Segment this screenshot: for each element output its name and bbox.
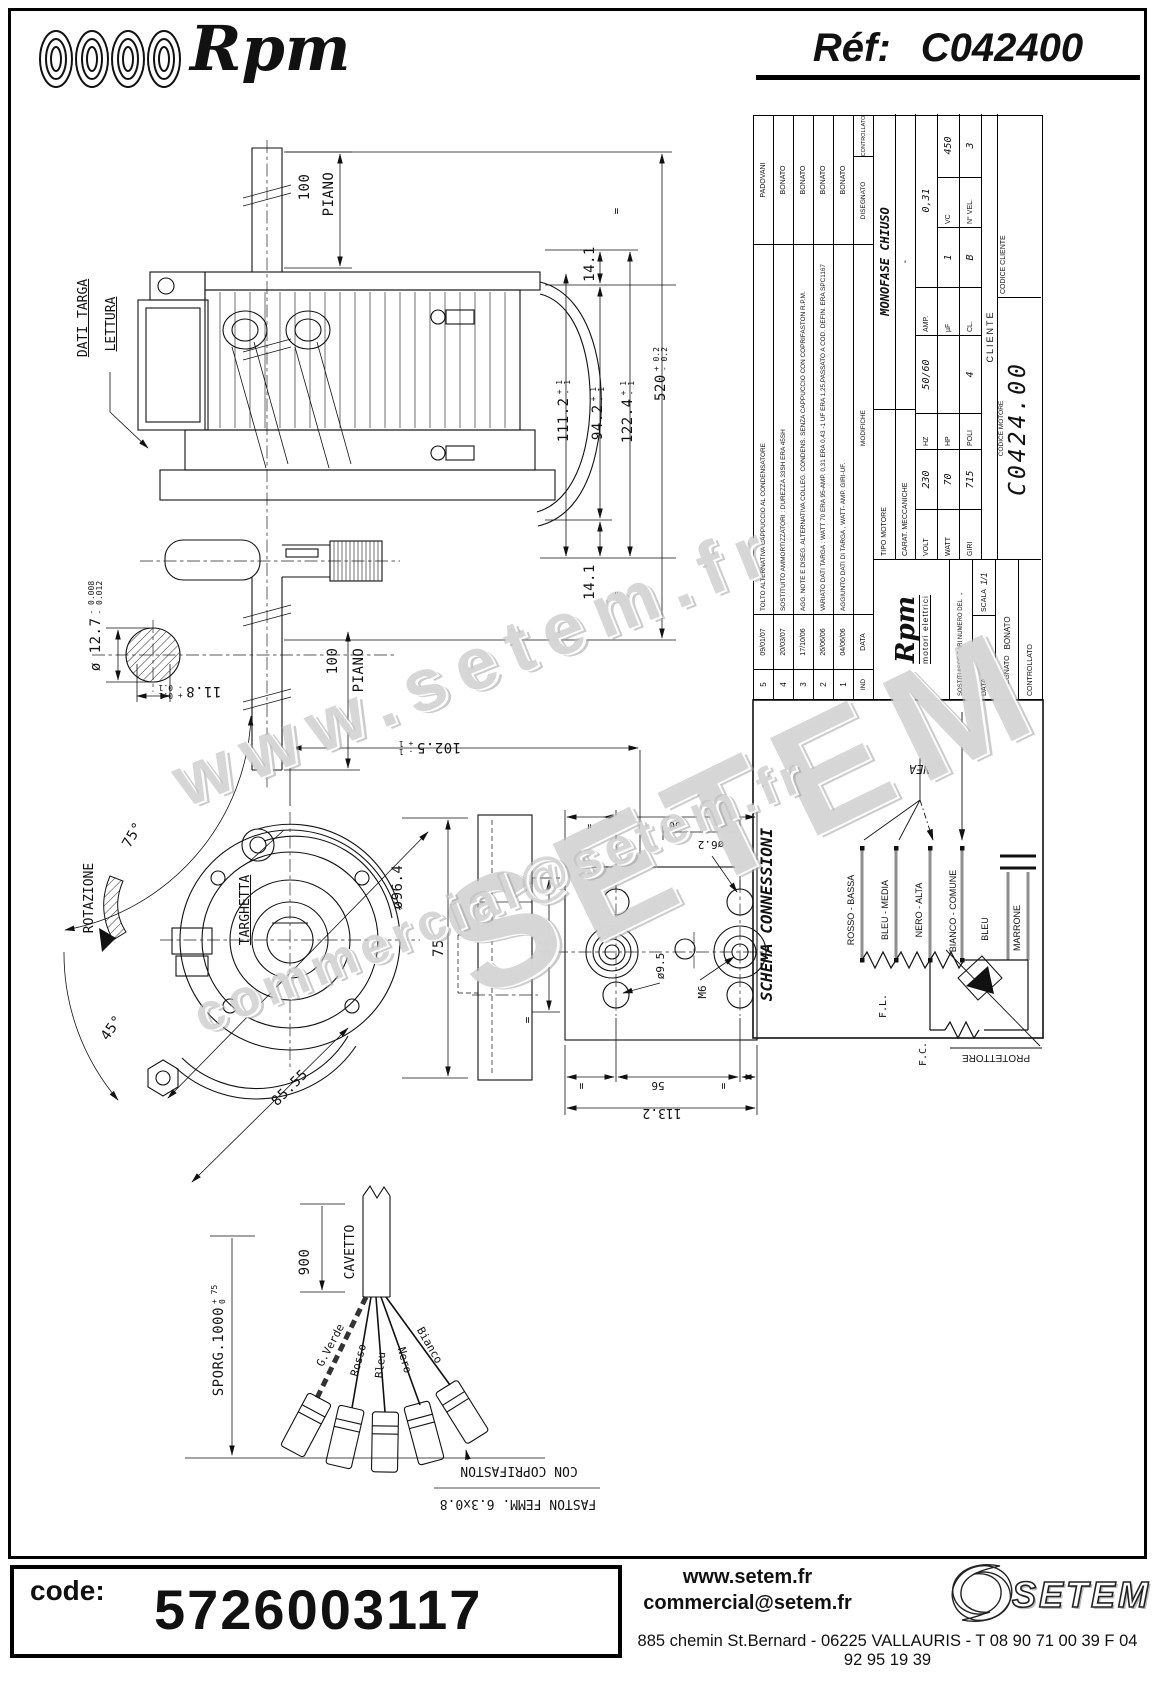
titleblock-rpm-sub: motori elettrici [919, 595, 931, 664]
dim-dia-9-5: ø9.5 [648, 936, 672, 996]
scala-row: SCALA 1/1 [973, 559, 996, 615]
titleblock-logo-cell: Rpm motori elettrici [874, 559, 950, 699]
uf-value: 1 [938, 227, 960, 287]
dim-113-2: 113.2 [634, 1102, 690, 1124]
data-row: DATA —23/05/06 [973, 615, 996, 699]
code-value: 5726003117 [154, 1577, 482, 1642]
schema-wire-marrone: MARRONE [1008, 892, 1026, 964]
label-dati-targa: DATI TARGA [72, 262, 94, 374]
giri-value: 715 [960, 449, 982, 509]
drawing-sheet: Rpm Réf: C042400 www.setem.fr SETEM comm… [0, 0, 1154, 1683]
uf-label: µF [938, 287, 960, 335]
hp-label: HP [938, 413, 960, 449]
dim-75: 75 [428, 920, 450, 976]
equal-mark-2: = [608, 586, 624, 604]
dim-piano-top: PIANO [318, 152, 340, 236]
label-rotazione: ROTAZIONE [78, 842, 100, 954]
reference-block: Réf: C042400 [756, 26, 1140, 80]
codice-motore-value: C0424.00 [1005, 298, 1031, 559]
dim-sporg-1000: SPORG.1000 + 750 [196, 1238, 242, 1443]
vc-value: 450 [938, 114, 960, 177]
code-box: code: 5726003117 [10, 1565, 622, 1658]
label-targhetta: TARGHETTA [234, 860, 256, 960]
dim-100-top: 100 [294, 158, 316, 216]
controllato-row: CONTROLLATO [1019, 559, 1041, 699]
schema-protettore: PROTETTORE [950, 1050, 1042, 1066]
revision-row: 1 04/06/06 AGGIUNTO DATI DI TARGA , WATT… [834, 116, 854, 699]
nvel-value: 3 [960, 114, 982, 177]
rpm-logo-text: Rpm [190, 12, 350, 85]
schema-wire-bleu: BLEU [976, 898, 994, 960]
codice-cliente-cell: CODICE CLIENTE [998, 114, 1041, 297]
nvel-label: N° VEL. [960, 177, 982, 227]
cl-label: CL. [960, 287, 982, 335]
label-coprifaston: CON COPRIFASTON [438, 1462, 600, 1480]
setem-logo-icon [945, 1558, 1019, 1628]
dim-m6: M6 [692, 976, 712, 1008]
code-label: code: [30, 1575, 105, 1607]
footer-email: commercial@setem.fr [625, 1592, 870, 1615]
dim-dia-6-2: ø6.2 [688, 836, 734, 854]
label-lettura: LETTURA [100, 278, 122, 370]
dim-111-2: 111.2 + 1- 1 [548, 356, 580, 466]
dim-122-4: 122.4 + 1- 1 [612, 356, 644, 468]
footer-address: 885 chemin St.Bernard - 06225 VALLAURIS … [630, 1632, 1145, 1670]
tipo-motore-label: TIPO MOTORE [874, 409, 896, 559]
hz-value: 50/60 [916, 335, 938, 413]
amp-value: 0,31 [916, 114, 938, 287]
equal-mark-6: = [574, 1078, 588, 1094]
revision-row: 3 17/10/06 AGG. NOTE E DISEG. ALTERNATIV… [794, 116, 814, 699]
schema-wire-bianco-comune: BIANCO - COMUNE [944, 850, 962, 972]
dim-piano-bottom: PIANO [348, 628, 370, 712]
dim-56: 56 [642, 1076, 674, 1096]
equal-mark-5: = [582, 819, 596, 835]
dim-dia-96-4: ø96.4 [386, 846, 410, 928]
label-faston: FASTON FEMM. 6.3x0.8 [432, 1494, 604, 1514]
equal-mark-7: = [716, 1078, 730, 1094]
schema-title: SCHEMA CONNESSIONI [754, 792, 778, 1037]
ref-label: Réf: [813, 26, 891, 71]
tipo-motore-value: MONOFASE CHIUSO [874, 114, 896, 409]
dim-14-1-bottom: 14.1 [580, 556, 600, 608]
dim-11-8: 11.8 + 0.1- 0.1 [125, 674, 255, 708]
revision-row: 4 20/03/07 SOSTITUITO AMMORTIZZATORI : D… [774, 116, 794, 699]
giri-label: GIRI [960, 509, 982, 559]
hp-value [938, 335, 960, 413]
dim-520: 520 + 0.2- 0.2 [644, 310, 678, 438]
watt-value: 70 [938, 449, 960, 509]
schema-wire-nero-alta: NERO - ALTA [910, 860, 928, 960]
dim-60: 60 [660, 818, 690, 834]
schema-wire-bleu-media: BLEU - MEDIA [876, 856, 894, 964]
connection-schema [753, 700, 1043, 1048]
cl-value: B [960, 227, 982, 287]
dim-102-5: 102.5 - 1+ 1 [370, 730, 490, 764]
schema-fl: F.L. [874, 986, 892, 1026]
dim-94-2: 94.2 + 1- 1 [582, 366, 614, 461]
schema-fc: F.C. [914, 1034, 932, 1074]
equal-mark-4: = [520, 1012, 534, 1028]
vc-label: VC [938, 177, 960, 227]
dim-14-1-top: 14.1 [580, 238, 600, 290]
titleblock-rpm-text: Rpm [893, 596, 919, 663]
footer-site: www.setem.fr [625, 1566, 870, 1589]
dim-100-bottom: 100 [322, 632, 344, 690]
revision-row: 2 26/06/06 VARIATO DATI TARGA : WATT 70 … [814, 116, 834, 699]
volt-label: VOLT [916, 509, 938, 559]
schema-wire-rosso-bassa: ROSSO - BASSA [842, 856, 860, 964]
disegnato-row: DISEGNATO BONATO [996, 559, 1019, 699]
watt-label: WATT [938, 509, 960, 559]
revision-header-row: IND DATA MODIFICHE DISEGNATO CONTROLLATO [854, 116, 874, 699]
rpm-logo-coils [40, 31, 180, 87]
hz-label: HZ [916, 413, 938, 449]
dim-dia-12-7: ø 12.7 - 0.008- 0.012 [70, 540, 122, 712]
setem-logo-text: SETEM [1012, 1574, 1151, 1616]
motor-front-view [148, 812, 420, 1099]
equal-mark-1: = [608, 202, 624, 220]
poli-value: 4 [960, 335, 982, 413]
dim-900: 900 [294, 1226, 316, 1298]
schema-linea: LINEA [894, 756, 960, 782]
dim-44: 44 [534, 924, 556, 972]
carat-label: CARAT. MECCANICHE [896, 409, 916, 559]
cliente-cell: CLIENTE [982, 114, 998, 559]
carat-value: - [896, 114, 916, 409]
revision-row: 5 09/01/07 TOLTO ALTERNATIVA CAPPUCCIO A… [754, 116, 774, 699]
equal-mark-3: = [520, 880, 534, 896]
sostituisce-row: SOSTITUISCE PARI NUMERO DEL - [950, 559, 973, 699]
poli-label: POLI [960, 413, 982, 449]
volt-value: 230 [916, 449, 938, 509]
amp-label: AMP. [916, 287, 938, 335]
ref-value: C042400 [921, 26, 1083, 71]
title-block: 5 09/01/07 TOLTO ALTERNATIVA CAPPUCCIO A… [753, 115, 1043, 700]
codice-motore-cell: CODICE MOTORE C0424.00 [998, 297, 1041, 559]
label-cavetto: CAVETTO [340, 1206, 360, 1298]
